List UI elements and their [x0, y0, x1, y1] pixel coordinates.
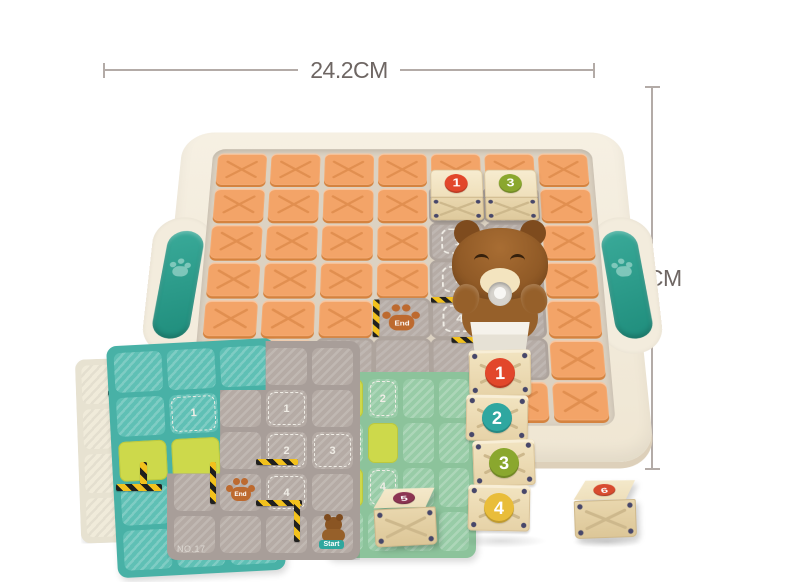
hazard-path-segment — [294, 500, 300, 542]
end-label: End — [231, 487, 251, 501]
card-tile — [439, 379, 470, 418]
rivet-dots — [485, 198, 539, 221]
card-tile — [312, 390, 353, 427]
card-tile — [113, 351, 163, 393]
card-number-label: NO.17 — [177, 544, 206, 554]
block-top-face: 6 — [573, 479, 636, 501]
product-photo-maze-game: 24.2CM 21CM — [0, 0, 808, 582]
width-dimension: 24.2CM — [103, 56, 595, 84]
maze-block-orange — [267, 188, 319, 220]
stacked-number-block: 3 — [472, 439, 536, 487]
pacifier-icon — [488, 282, 512, 306]
maze-block-orange — [322, 188, 373, 220]
card-tile — [439, 468, 470, 507]
maze-block-orange — [377, 188, 427, 220]
block-front-face — [574, 499, 637, 539]
maze-block-orange — [550, 341, 606, 378]
rivet-dots — [374, 506, 438, 547]
maze-block-orange — [263, 262, 316, 297]
maze-block-orange — [552, 382, 609, 420]
stacked-number-block: 4 — [468, 484, 531, 531]
card-target-cell: 2 — [368, 379, 399, 418]
wooden-number-block: 1 — [430, 169, 484, 220]
stacked-number-block: 2 — [466, 394, 529, 441]
paw-print-icon — [168, 256, 195, 278]
rivet-dots — [574, 499, 637, 539]
right-handle-grip — [599, 230, 655, 340]
card-tile — [312, 348, 353, 385]
start-label: Start — [319, 540, 345, 549]
card-end-cell: End — [220, 474, 261, 511]
card-tile — [266, 516, 307, 553]
dimension-line — [400, 69, 594, 71]
rivet-dots — [430, 198, 484, 221]
card-tile — [403, 423, 434, 462]
maze-block-orange — [377, 225, 428, 258]
maze-block-orange — [324, 153, 374, 184]
dimension-tick — [645, 468, 660, 470]
maze-block-orange — [376, 262, 428, 297]
number-badge: 6 — [592, 483, 617, 497]
maze-block-orange — [318, 301, 372, 337]
wooden-number-block: 3 — [484, 169, 539, 220]
maze-block-orange — [378, 153, 428, 184]
dimension-line — [651, 88, 653, 255]
board-cell: 3 — [486, 188, 538, 220]
hazard-path-segment — [256, 459, 298, 465]
bear-figure — [452, 220, 548, 364]
target-frame: 1 — [268, 392, 305, 425]
card-target-cell: 3 — [312, 432, 353, 469]
maze-block-orange — [206, 262, 260, 297]
end-label: End — [389, 315, 415, 331]
block-top-face: 1 — [430, 169, 483, 197]
maze-block-orange — [265, 225, 318, 258]
maze-block-orange — [321, 225, 373, 258]
start-marker: Start — [318, 517, 348, 551]
card-tile — [220, 432, 261, 469]
card-tile — [403, 379, 434, 418]
maze-block-orange — [203, 301, 258, 337]
end-paw-icon: End — [383, 305, 423, 333]
block-front-face — [430, 198, 484, 221]
loose-number-block: 5 — [373, 486, 438, 547]
target-frame: 3 — [314, 434, 351, 467]
bear-muzzle — [480, 268, 520, 296]
stack-shadow — [455, 534, 547, 548]
loose-number-block: 6 — [573, 479, 637, 539]
number-badge: 1 — [445, 174, 469, 193]
block-top-face: 3 — [484, 169, 538, 197]
bear-eye — [474, 254, 489, 267]
card-tile — [166, 348, 216, 390]
end-cell: End — [376, 301, 429, 337]
hazard-path-segment — [116, 484, 162, 491]
card-tile — [266, 348, 307, 385]
dimension-tick — [593, 63, 595, 78]
card-target-cell: 1 — [169, 392, 219, 434]
target-frame: 1 — [171, 395, 217, 433]
card-tile — [123, 529, 173, 571]
hazard-path-segment — [210, 462, 216, 504]
maze-block-orange — [260, 301, 314, 337]
paw-print-icon — [610, 256, 637, 278]
maze-block-orange — [320, 262, 373, 297]
hazard-path-segment — [373, 299, 380, 337]
number-badge: 3 — [499, 174, 523, 193]
maze-block-orange — [209, 225, 262, 258]
card-tile — [312, 474, 353, 511]
card-tile — [219, 345, 269, 387]
maze-block-orange — [545, 262, 599, 297]
card-target-cell: 1 — [266, 390, 307, 427]
maze-block-orange — [270, 153, 321, 184]
number-block-stack: 1234 — [466, 350, 536, 536]
block-front-face — [485, 198, 539, 221]
card-tile — [116, 395, 166, 437]
target-frame: 2 — [370, 381, 397, 416]
block-front-face — [374, 506, 438, 547]
bear-eye — [510, 254, 525, 267]
maze-block-orange — [216, 153, 268, 184]
maze-block-orange — [540, 188, 592, 220]
stacked-number-block: 1 — [469, 349, 532, 396]
maze-block-orange — [538, 153, 590, 184]
card-tile — [174, 474, 215, 511]
card-start-cell: Start — [312, 516, 353, 553]
maze-block-orange — [213, 188, 265, 220]
card-tile — [220, 390, 261, 427]
end-paw-icon: End — [226, 478, 256, 503]
maze-block-orange — [542, 225, 595, 258]
board-cell: 1 — [432, 188, 483, 220]
number-badge: 5 — [392, 491, 417, 505]
maze-block-orange — [547, 301, 602, 337]
width-dimension-label: 24.2CM — [298, 57, 400, 84]
card-tile — [220, 516, 261, 553]
card-tile — [368, 423, 399, 462]
card-tile — [439, 423, 470, 462]
dimension-line — [105, 69, 299, 71]
